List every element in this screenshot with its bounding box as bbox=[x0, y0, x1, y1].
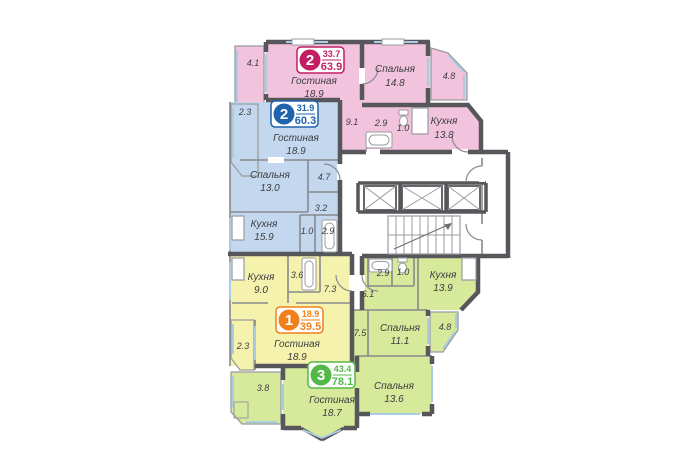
pink-bedroom-area: 14.8 bbox=[385, 78, 405, 89]
floor-plan-page: Гостиная 18.9 Спальня 14.8 Кухня 13.8 9.… bbox=[0, 0, 700, 450]
green-kitchen-name: Кухня bbox=[430, 270, 457, 281]
yellow-kitchen-name: Кухня bbox=[248, 272, 275, 283]
pink-badge-total-area: 63.9 bbox=[321, 61, 342, 73]
yellow-bath-area: 3.6 bbox=[291, 270, 304, 280]
green-bedroom2-area: 13.6 bbox=[384, 394, 404, 405]
yellow-living-name: Гостиная bbox=[274, 339, 320, 350]
blue-wc-area: 1.0 bbox=[301, 226, 314, 236]
pink-wc-area: 1.0 bbox=[397, 123, 410, 133]
green-balcony-left-area: 3.8 bbox=[257, 383, 270, 393]
blue-living-name: Гостиная bbox=[273, 133, 319, 144]
blue-hall2-area: 3.2 bbox=[315, 203, 328, 213]
elevator-icon bbox=[364, 186, 480, 210]
yellow-balcony-area: 2.3 bbox=[236, 341, 250, 351]
pink-hall-area: 9.1 bbox=[346, 117, 359, 127]
yellow-badge-number: 1 bbox=[285, 312, 293, 329]
pink-balcony-right-area: 4.8 bbox=[443, 71, 456, 81]
green-balcony-left bbox=[231, 372, 281, 424]
yellow-living-area: 18.9 bbox=[287, 352, 307, 363]
pink-kitchen-area: 13.8 bbox=[434, 130, 454, 141]
yellow-badge-living-area: 18.9 bbox=[302, 309, 320, 319]
pink-badge-number: 2 bbox=[306, 52, 314, 69]
green-hall-area: 7.5 bbox=[354, 328, 368, 338]
badge-apartment-blue: 2 31.9 60.3 bbox=[271, 101, 318, 127]
yellow-kitchen-area: 9.0 bbox=[254, 285, 268, 296]
green-bedroom1-area: 11.1 bbox=[391, 336, 410, 347]
pink-living-name: Гостиная bbox=[291, 76, 337, 87]
badge-apartment-pink: 2 33.7 63.9 bbox=[297, 47, 344, 73]
pink-bedroom-name: Спальня bbox=[375, 64, 416, 75]
green-wc-area: 1.0 bbox=[397, 267, 410, 277]
blue-badge-living-area: 31.9 bbox=[297, 103, 315, 113]
pink-living-area: 18.9 bbox=[304, 89, 324, 100]
floor-plan: Гостиная 18.9 Спальня 14.8 Кухня 13.8 9.… bbox=[0, 0, 700, 450]
blue-bedroom-area: 13.0 bbox=[260, 183, 280, 194]
yellow-badge-total-area: 39.5 bbox=[300, 321, 321, 333]
blue-living-area: 18.9 bbox=[286, 146, 306, 157]
blue-bath-area: 2.9 bbox=[321, 226, 335, 236]
green-kitchen-area: 13.9 bbox=[433, 283, 453, 294]
blue-kitchen-area: 15.9 bbox=[254, 232, 274, 243]
green-badge-total-area: 78.1 bbox=[332, 376, 353, 388]
green-badge-number: 3 bbox=[317, 367, 325, 384]
yellow-hall-area: 7.3 bbox=[324, 284, 337, 294]
badge-apartment-green: 3 43.4 78.1 bbox=[308, 362, 355, 388]
blue-balcony-area: 2.3 bbox=[238, 107, 252, 117]
green-bedroom2-name: Спальня bbox=[374, 381, 415, 392]
pink-kitchen-name: Кухня bbox=[431, 116, 458, 127]
green-hall2-area: 6.1 bbox=[362, 289, 375, 299]
blue-badge-number: 2 bbox=[280, 106, 288, 123]
pink-balcony-left-area: 4.1 bbox=[247, 58, 260, 68]
green-living-name: Гостиная bbox=[309, 395, 355, 406]
green-bath-area: 2.9 bbox=[376, 268, 390, 278]
blue-bedroom-name: Спальня bbox=[250, 170, 291, 181]
green-living-area: 18.7 bbox=[322, 408, 342, 419]
pink-bath-area: 2.9 bbox=[374, 118, 388, 128]
blue-hall-area: 4.7 bbox=[318, 172, 332, 182]
green-bedroom1-name: Спальня bbox=[380, 323, 421, 334]
stairs-icon bbox=[388, 216, 460, 254]
blue-kitchen-name: Кухня bbox=[251, 219, 278, 230]
green-balcony-right-area: 4.8 bbox=[439, 322, 452, 332]
badge-apartment-yellow: 1 18.9 39.5 bbox=[276, 307, 323, 333]
pink-badge-living-area: 33.7 bbox=[323, 49, 341, 59]
blue-badge-total-area: 60.3 bbox=[295, 115, 316, 127]
green-badge-living-area: 43.4 bbox=[334, 364, 352, 374]
